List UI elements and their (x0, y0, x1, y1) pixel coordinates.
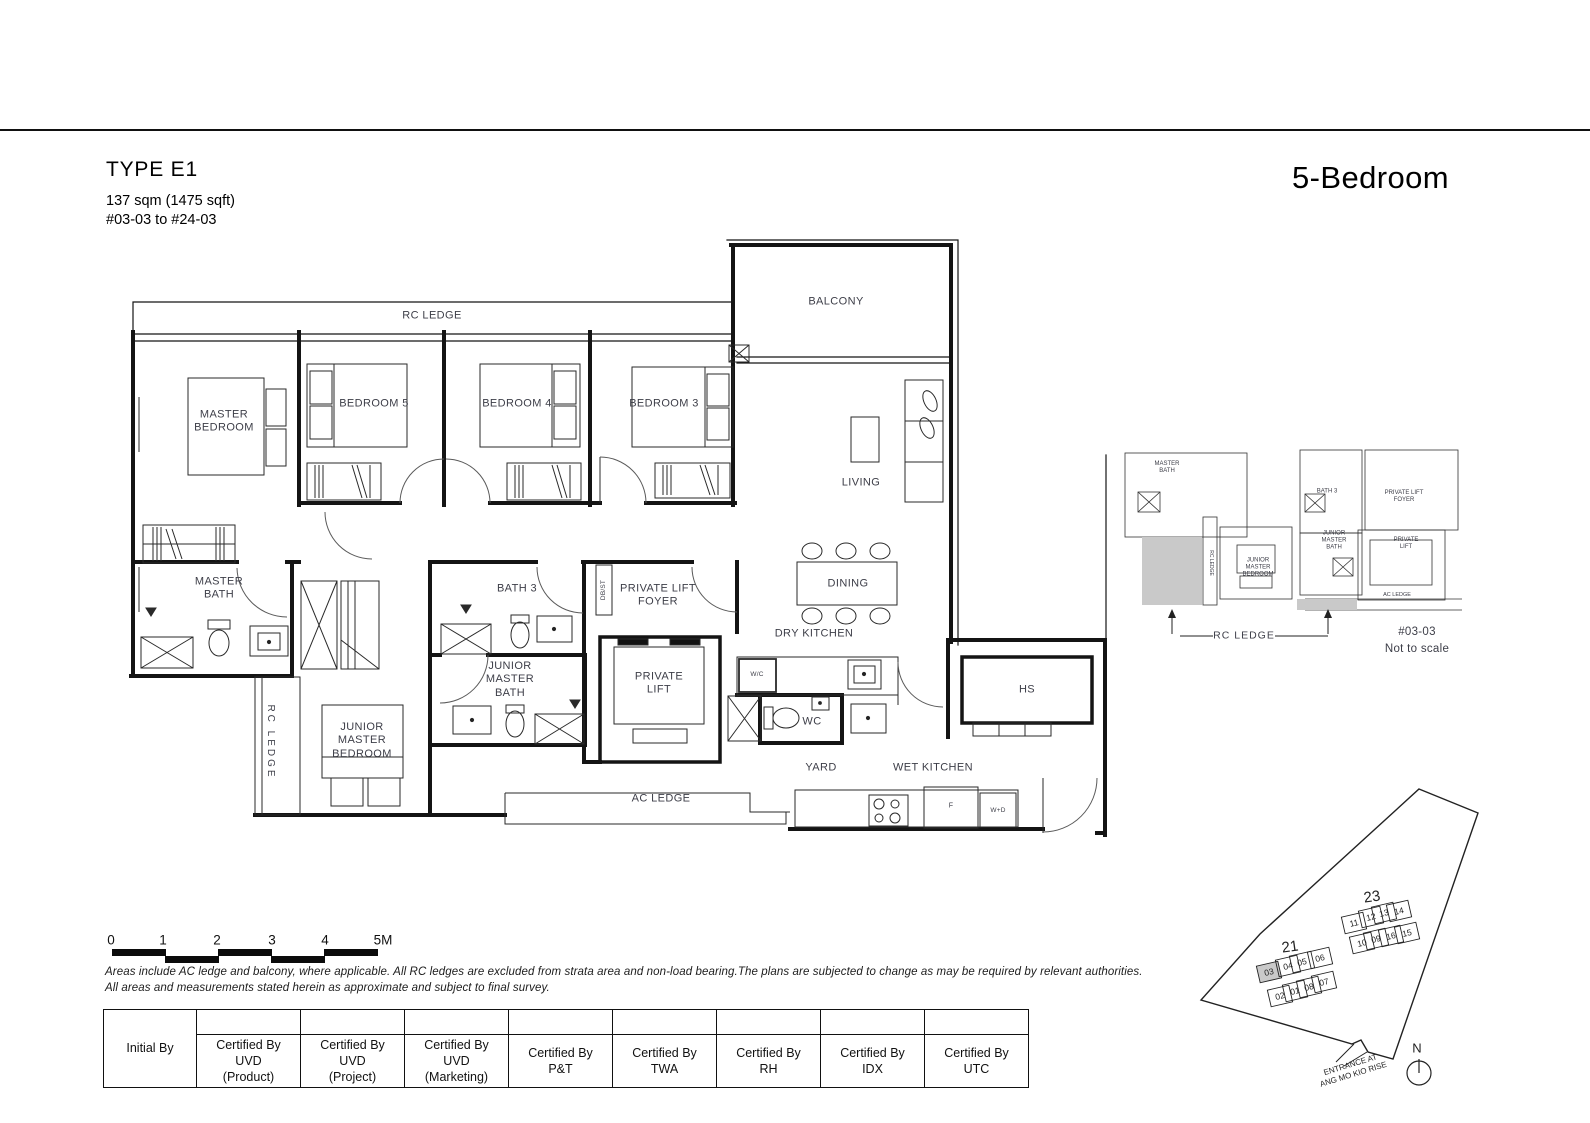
stack-range-text: #03-03 to #24-03 (106, 212, 216, 228)
washer-dryer-label: W+D (990, 807, 1005, 815)
unit-number-04: 04 (1282, 960, 1293, 972)
unit-number-06: 06 (1314, 952, 1325, 964)
unit-number-07: 07 (1318, 976, 1329, 988)
signature-cell (925, 1010, 1029, 1035)
keyplan-bath3-label: BATH 3 (1317, 489, 1338, 496)
living-label: LIVING (842, 476, 880, 489)
north-label: N (1412, 1041, 1421, 1056)
certified-by-cell: Certified By IDX (821, 1035, 925, 1088)
keyplan-rc-ledge-shade (1142, 537, 1202, 605)
certified-by-cell: Certified By TWA (613, 1035, 717, 1088)
private-lift-foyer-label: PRIVATE LIFT FOYER (613, 583, 703, 610)
hs-label: HS (1019, 683, 1035, 696)
rc-ledge-top-label: RC LEDGE (402, 309, 461, 322)
unit-number-11: 11 (1349, 917, 1360, 929)
certified-by-cell: Certified By RH (717, 1035, 821, 1088)
rc-ledge-left-label: RC LEDGE (264, 704, 276, 779)
keyplan-unit-number: #03-03 (1398, 626, 1436, 638)
keyplan-rc-ledge-shade-2 (1297, 599, 1357, 610)
initial-by-cell: Initial By (104, 1010, 197, 1088)
scale-segment (218, 949, 272, 956)
fridge-label: F (949, 803, 953, 812)
signature-cell (717, 1010, 821, 1035)
unit-number-09: 09 (1370, 933, 1381, 945)
keyplan-private-lift-label: PRIVATE LIFT (1389, 537, 1423, 551)
door-arcs (237, 457, 1097, 832)
scale-tick-2: 2 (213, 933, 221, 948)
signature-cell (301, 1010, 405, 1035)
scale-segment (165, 956, 219, 963)
keyplan-junior-master-bath-label: JUNIOR MASTER BATH (1316, 531, 1352, 552)
balcony-label: BALCONY (808, 295, 863, 308)
block-23-label: 23 (1363, 887, 1382, 906)
scale-segment (112, 949, 166, 956)
master-bath-label: MASTER BATH (190, 576, 248, 603)
master-bedroom-label: MASTER BEDROOM (187, 409, 261, 436)
bath3-label: BATH 3 (497, 582, 537, 595)
scale-tick-5: 5M (374, 933, 393, 948)
disclaimer-line-1: Areas include AC ledge and balcony, wher… (105, 966, 1143, 978)
ac-ledge-label: AC LEDGE (632, 792, 691, 805)
disclaimer-line-2: All areas and measurements stated herein… (105, 982, 550, 994)
unit-number-12: 12 (1365, 911, 1376, 923)
certified-by-cell: Certified By UVD (Product) (197, 1035, 301, 1088)
keyplan-ac-ledge-label: AC LEDGE (1383, 592, 1411, 598)
scale-tick-1: 1 (159, 933, 167, 948)
junior-master-bath-label: JUNIOR MASTER BATH (481, 660, 539, 700)
floorplan-page: TYPE E1 137 sqm (1475 sqft) #03-03 to #2… (0, 0, 1590, 1123)
block-21-label: 21 (1281, 937, 1300, 956)
signature-cell (197, 1010, 301, 1035)
certified-by-cell: Certified By P&T (509, 1035, 613, 1088)
area-text: 137 sqm (1475 sqft) (106, 193, 235, 209)
unit-number-14: 14 (1393, 905, 1404, 917)
floorplan-walls (131, 240, 1106, 835)
unit-number-08: 08 (1303, 981, 1314, 993)
scale-tick-0: 0 (107, 933, 115, 948)
signature-cell (509, 1010, 613, 1035)
bedroom4-label: BEDROOM 4 (482, 397, 552, 410)
keyplan-master-bath-label: MASTER BATH (1151, 461, 1183, 475)
signature-cell (405, 1010, 509, 1035)
scale-segment (324, 949, 378, 956)
db-st-label: DB/ST (600, 580, 608, 600)
keyplan-rc-ledge-callout: RC LEDGE (1213, 630, 1275, 643)
dining-label: DINING (828, 577, 869, 590)
yard-label: YARD (805, 761, 836, 774)
unit-number-16: 16 (1385, 930, 1396, 942)
keyplan-junior-master-bedroom-label: JUNIOR MASTER BEDROOM (1235, 558, 1281, 579)
dry-kitchen-label: DRY KITCHEN (775, 627, 854, 640)
certified-by-cell: Certified By UVD (Project) (301, 1035, 405, 1088)
unit-type-title: 5-Bedroom (1292, 160, 1449, 196)
scale-tick-3: 3 (268, 933, 276, 948)
unit-number-10: 10 (1356, 937, 1367, 949)
certification-table: Initial By Certified By UVD (Product) Ce… (103, 1009, 1029, 1088)
bedroom3-label: BEDROOM 3 (629, 397, 699, 410)
wc-compartment-label: W/C (750, 671, 763, 679)
private-lift-label: PRIVATE LIFT (631, 671, 687, 698)
certified-by-cell: Certified By UTC (925, 1035, 1029, 1088)
signature-cell (613, 1010, 717, 1035)
scale-tick-4: 4 (321, 933, 329, 948)
wc-label: WC (802, 715, 821, 728)
keyplan-rc-ledge-vertical-label: RC LEDGE (1207, 550, 1213, 576)
unit-number-05: 05 (1296, 956, 1307, 968)
keyplan-scale-note: Not to scale (1385, 643, 1449, 655)
bedroom5-label: BEDROOM 5 (339, 397, 409, 410)
siteplan-drawing (1201, 789, 1478, 1085)
unit-number-15: 15 (1401, 927, 1412, 939)
keyplan-private-lift-foyer-label: PRIVATE LIFT FOYER (1382, 490, 1426, 504)
unit-number-02: 02 (1274, 990, 1285, 1002)
certified-by-cell: Certified By UVD (Marketing) (405, 1035, 509, 1088)
junior-master-bedroom-label: JUNIOR MASTER BEDROOM (324, 721, 400, 761)
unit-number-13: 13 (1378, 907, 1389, 919)
signature-cell (821, 1010, 925, 1035)
scale-segment (271, 956, 325, 963)
type-title: TYPE E1 (106, 158, 198, 182)
unit-number-01: 01 (1289, 985, 1300, 997)
wet-kitchen-label: WET KITCHEN (893, 761, 973, 774)
unit-number-03: 03 (1263, 966, 1274, 978)
